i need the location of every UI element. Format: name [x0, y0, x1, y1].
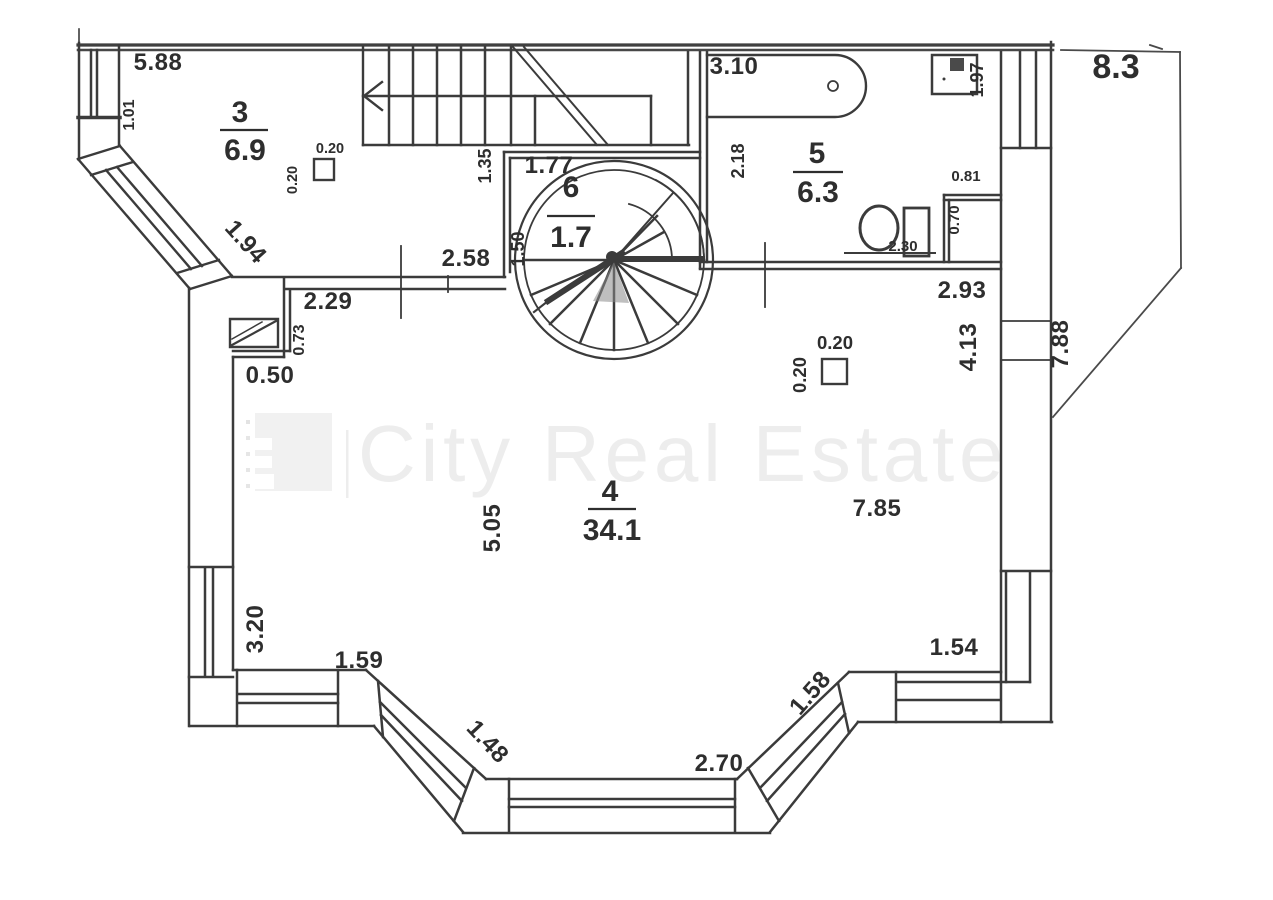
svg-text:1.97: 1.97: [967, 62, 987, 97]
svg-text:34.1: 34.1: [583, 514, 641, 547]
svg-text:0.20: 0.20: [817, 332, 853, 353]
svg-text:8.3: 8.3: [1092, 48, 1139, 86]
svg-text:2.30: 2.30: [888, 238, 917, 255]
svg-text:0.20: 0.20: [316, 141, 344, 157]
svg-text:0.50: 0.50: [246, 362, 295, 389]
svg-text:3: 3: [232, 96, 249, 129]
svg-text:0.73: 0.73: [291, 324, 308, 355]
svg-text:3.20: 3.20: [242, 605, 269, 654]
svg-text:2.58: 2.58: [442, 245, 491, 272]
svg-text:6.9: 6.9: [224, 134, 266, 167]
svg-text:2.18: 2.18: [728, 143, 748, 178]
svg-text:2.93: 2.93: [938, 277, 987, 304]
svg-text:City Real Estate: City Real Estate: [358, 409, 1008, 498]
svg-text:7.85: 7.85: [853, 495, 902, 522]
svg-text:6.3: 6.3: [797, 176, 839, 209]
svg-text:7.88: 7.88: [1047, 320, 1074, 369]
svg-text:0.20: 0.20: [789, 357, 810, 393]
svg-text:1.35: 1.35: [475, 148, 495, 183]
svg-text:0.70: 0.70: [946, 205, 963, 234]
svg-text:5: 5: [809, 137, 826, 170]
svg-text:5.05: 5.05: [479, 504, 506, 553]
svg-text:0.81: 0.81: [951, 168, 980, 185]
svg-text:4: 4: [602, 475, 619, 508]
svg-text:3.10: 3.10: [710, 53, 759, 80]
svg-text:1.54: 1.54: [930, 634, 979, 661]
svg-text:1.48: 1.48: [461, 715, 514, 769]
svg-text:1.01: 1.01: [121, 99, 138, 130]
svg-text:2.70: 2.70: [695, 750, 744, 777]
svg-text:0.20: 0.20: [285, 166, 301, 194]
svg-text:4.13: 4.13: [955, 323, 982, 372]
svg-text:1.7: 1.7: [550, 221, 592, 254]
svg-text:1.77: 1.77: [525, 152, 574, 179]
svg-text:1.94: 1.94: [219, 215, 272, 269]
svg-text:1.50: 1.50: [508, 231, 528, 266]
svg-text:1.59: 1.59: [335, 647, 384, 674]
svg-text:2.29: 2.29: [304, 288, 353, 315]
svg-text:5.88: 5.88: [134, 49, 183, 76]
